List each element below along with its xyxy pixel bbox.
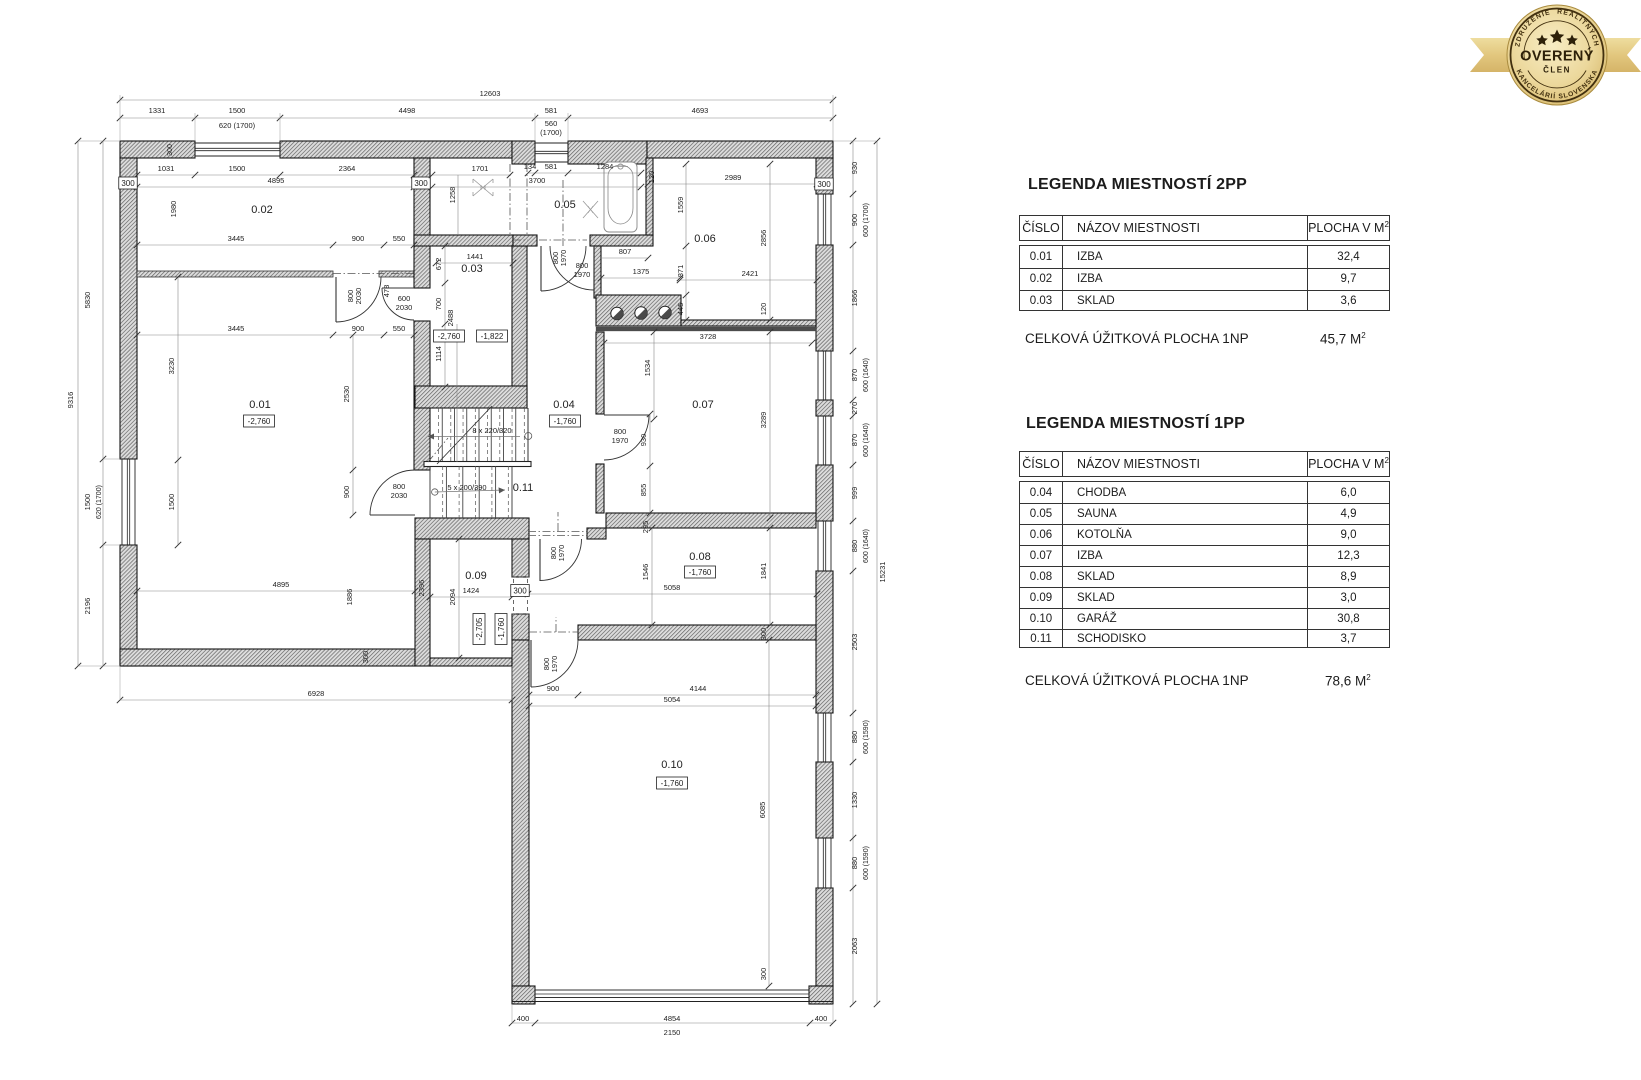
svg-text:(1700): (1700) bbox=[540, 128, 562, 137]
svg-text:1424: 1424 bbox=[463, 586, 480, 595]
svg-text:300: 300 bbox=[121, 179, 135, 188]
svg-text:1546: 1546 bbox=[641, 564, 650, 581]
svg-text:930: 930 bbox=[850, 162, 859, 175]
svg-text:1500: 1500 bbox=[167, 494, 176, 511]
svg-text:0.02: 0.02 bbox=[251, 204, 272, 216]
svg-text:900: 900 bbox=[352, 234, 365, 243]
svg-text:880: 880 bbox=[850, 857, 859, 870]
svg-text:4144: 4144 bbox=[690, 684, 707, 693]
svg-text:3700: 3700 bbox=[529, 176, 546, 185]
svg-text:600: 600 bbox=[398, 294, 411, 303]
svg-text:1031: 1031 bbox=[158, 164, 175, 173]
svg-text:0.03: 0.03 bbox=[461, 263, 482, 275]
svg-text:1441: 1441 bbox=[467, 252, 484, 261]
svg-text:880: 880 bbox=[850, 540, 859, 553]
svg-text:270: 270 bbox=[850, 402, 859, 415]
svg-text:300: 300 bbox=[817, 180, 831, 189]
svg-text:300: 300 bbox=[414, 179, 428, 188]
svg-text:700: 700 bbox=[434, 298, 443, 311]
svg-text:581: 581 bbox=[545, 106, 558, 115]
svg-text:4895: 4895 bbox=[268, 176, 285, 185]
svg-text:1559: 1559 bbox=[676, 197, 685, 214]
svg-text:2030: 2030 bbox=[396, 303, 413, 312]
svg-text:0.10: 0.10 bbox=[661, 759, 682, 771]
svg-text:620 (1700): 620 (1700) bbox=[219, 121, 256, 130]
svg-text:900: 900 bbox=[342, 486, 351, 499]
svg-text:12603: 12603 bbox=[480, 89, 501, 98]
svg-text:6085: 6085 bbox=[758, 802, 767, 819]
svg-text:0.11: 0.11 bbox=[513, 482, 534, 494]
svg-text:1970: 1970 bbox=[550, 656, 559, 673]
svg-text:620 (1700): 620 (1700) bbox=[96, 485, 103, 519]
svg-text:1701: 1701 bbox=[472, 164, 489, 173]
svg-text:ČLEN: ČLEN bbox=[1543, 66, 1571, 75]
svg-text:3230: 3230 bbox=[167, 358, 176, 375]
svg-text:134: 134 bbox=[524, 162, 537, 171]
svg-text:600 (1590): 600 (1590) bbox=[863, 846, 870, 880]
svg-text:0.07: 0.07 bbox=[692, 399, 713, 411]
svg-text:0.09: 0.09 bbox=[465, 570, 486, 582]
svg-text:400: 400 bbox=[815, 1014, 828, 1023]
svg-text:871: 871 bbox=[676, 265, 685, 278]
svg-text:-1,760: -1,760 bbox=[497, 617, 506, 640]
svg-text:807: 807 bbox=[619, 247, 632, 256]
svg-text:2063: 2063 bbox=[850, 938, 859, 955]
svg-text:2396: 2396 bbox=[417, 580, 426, 597]
svg-text:1866: 1866 bbox=[850, 290, 859, 307]
svg-text:870: 870 bbox=[850, 369, 859, 382]
svg-text:1970: 1970 bbox=[557, 545, 566, 562]
svg-text:800: 800 bbox=[576, 261, 589, 270]
svg-text:3289: 3289 bbox=[759, 412, 768, 429]
svg-text:1970: 1970 bbox=[559, 250, 568, 267]
svg-text:300: 300 bbox=[167, 144, 174, 156]
svg-text:870: 870 bbox=[850, 434, 859, 447]
svg-text:-2,760: -2,760 bbox=[438, 332, 461, 341]
svg-text:1500: 1500 bbox=[229, 106, 246, 115]
svg-text:600 (1640): 600 (1640) bbox=[863, 423, 870, 457]
svg-text:930: 930 bbox=[639, 434, 648, 447]
svg-text:-2,760: -2,760 bbox=[248, 417, 271, 426]
svg-text:300: 300 bbox=[513, 586, 527, 595]
svg-text:800: 800 bbox=[614, 427, 627, 436]
svg-text:2030: 2030 bbox=[391, 491, 408, 500]
svg-text:0.05: 0.05 bbox=[554, 199, 575, 211]
svg-text:1970: 1970 bbox=[574, 270, 591, 279]
svg-text:1330: 1330 bbox=[850, 792, 859, 809]
svg-text:672: 672 bbox=[434, 258, 443, 271]
svg-text:0.06: 0.06 bbox=[694, 233, 715, 245]
svg-text:2030: 2030 bbox=[354, 288, 363, 305]
svg-text:-1,760: -1,760 bbox=[661, 779, 684, 788]
svg-text:2488: 2488 bbox=[446, 310, 455, 327]
svg-text:8 x 220/320: 8 x 220/320 bbox=[472, 426, 511, 435]
svg-text:999: 999 bbox=[850, 487, 859, 500]
svg-text:300: 300 bbox=[759, 628, 768, 641]
svg-text:15231: 15231 bbox=[878, 562, 887, 583]
svg-text:1500: 1500 bbox=[83, 494, 92, 511]
svg-text:4895: 4895 bbox=[273, 580, 290, 589]
svg-text:-1,822: -1,822 bbox=[481, 332, 504, 341]
svg-text:560: 560 bbox=[545, 119, 558, 128]
svg-text:1970: 1970 bbox=[612, 436, 629, 445]
svg-text:3445: 3445 bbox=[228, 324, 245, 333]
svg-text:5 x 200/390: 5 x 200/390 bbox=[447, 483, 486, 492]
svg-text:-1,760: -1,760 bbox=[554, 417, 577, 426]
svg-text:300: 300 bbox=[759, 968, 768, 981]
svg-text:1980: 1980 bbox=[169, 201, 178, 218]
svg-text:3728: 3728 bbox=[700, 332, 717, 341]
svg-text:1886: 1886 bbox=[345, 589, 354, 606]
svg-text:880: 880 bbox=[850, 731, 859, 744]
svg-text:2989: 2989 bbox=[725, 173, 742, 182]
svg-text:600 (1700): 600 (1700) bbox=[863, 203, 870, 237]
svg-text:3445: 3445 bbox=[228, 234, 245, 243]
svg-text:2530: 2530 bbox=[342, 386, 351, 403]
svg-text:1258: 1258 bbox=[448, 187, 457, 204]
svg-text:4854: 4854 bbox=[664, 1014, 681, 1023]
svg-text:900: 900 bbox=[850, 214, 859, 227]
svg-text:2150: 2150 bbox=[664, 1028, 681, 1037]
svg-text:120: 120 bbox=[647, 171, 656, 184]
svg-text:550: 550 bbox=[393, 234, 406, 243]
svg-text:2503: 2503 bbox=[850, 634, 859, 651]
svg-text:1500: 1500 bbox=[229, 164, 246, 173]
svg-text:5058: 5058 bbox=[664, 583, 681, 592]
svg-text:295: 295 bbox=[641, 521, 650, 534]
svg-text:2094: 2094 bbox=[448, 589, 457, 606]
svg-text:0.01: 0.01 bbox=[249, 399, 270, 411]
svg-text:0.08: 0.08 bbox=[689, 551, 710, 563]
svg-text:2196: 2196 bbox=[83, 598, 92, 615]
svg-text:1375: 1375 bbox=[633, 267, 650, 276]
svg-text:5830: 5830 bbox=[83, 292, 92, 309]
svg-text:445: 445 bbox=[676, 303, 685, 316]
svg-text:300: 300 bbox=[361, 651, 370, 664]
svg-text:600 (1590): 600 (1590) bbox=[863, 720, 870, 754]
svg-text:-2,705: -2,705 bbox=[475, 617, 484, 640]
svg-text:2364: 2364 bbox=[339, 164, 356, 173]
svg-text:478: 478 bbox=[382, 285, 391, 298]
svg-text:600 (1640): 600 (1640) bbox=[863, 529, 870, 563]
svg-text:900: 900 bbox=[547, 684, 560, 693]
svg-text:1841: 1841 bbox=[759, 563, 768, 580]
svg-text:400: 400 bbox=[517, 1014, 530, 1023]
svg-text:600 (1640): 600 (1640) bbox=[863, 358, 870, 392]
svg-text:1114: 1114 bbox=[434, 346, 443, 362]
svg-text:550: 550 bbox=[393, 324, 406, 333]
svg-text:581: 581 bbox=[545, 162, 558, 171]
svg-text:900: 900 bbox=[352, 324, 365, 333]
svg-text:OVERENÝ: OVERENÝ bbox=[1520, 47, 1594, 65]
svg-text:0.04: 0.04 bbox=[553, 399, 574, 411]
svg-text:2856: 2856 bbox=[759, 230, 768, 247]
svg-text:1534: 1534 bbox=[643, 360, 652, 377]
svg-text:1284: 1284 bbox=[597, 162, 614, 171]
svg-text:1331: 1331 bbox=[149, 106, 166, 115]
svg-text:9316: 9316 bbox=[66, 392, 75, 409]
svg-text:2421: 2421 bbox=[742, 269, 759, 278]
svg-text:6928: 6928 bbox=[308, 689, 325, 698]
svg-text:855: 855 bbox=[639, 484, 648, 497]
svg-text:4693: 4693 bbox=[692, 106, 709, 115]
svg-text:4498: 4498 bbox=[399, 106, 416, 115]
svg-text:120: 120 bbox=[759, 303, 768, 316]
svg-text:800: 800 bbox=[393, 482, 406, 491]
svg-text:-1,760: -1,760 bbox=[689, 568, 712, 577]
svg-text:5054: 5054 bbox=[664, 695, 681, 704]
